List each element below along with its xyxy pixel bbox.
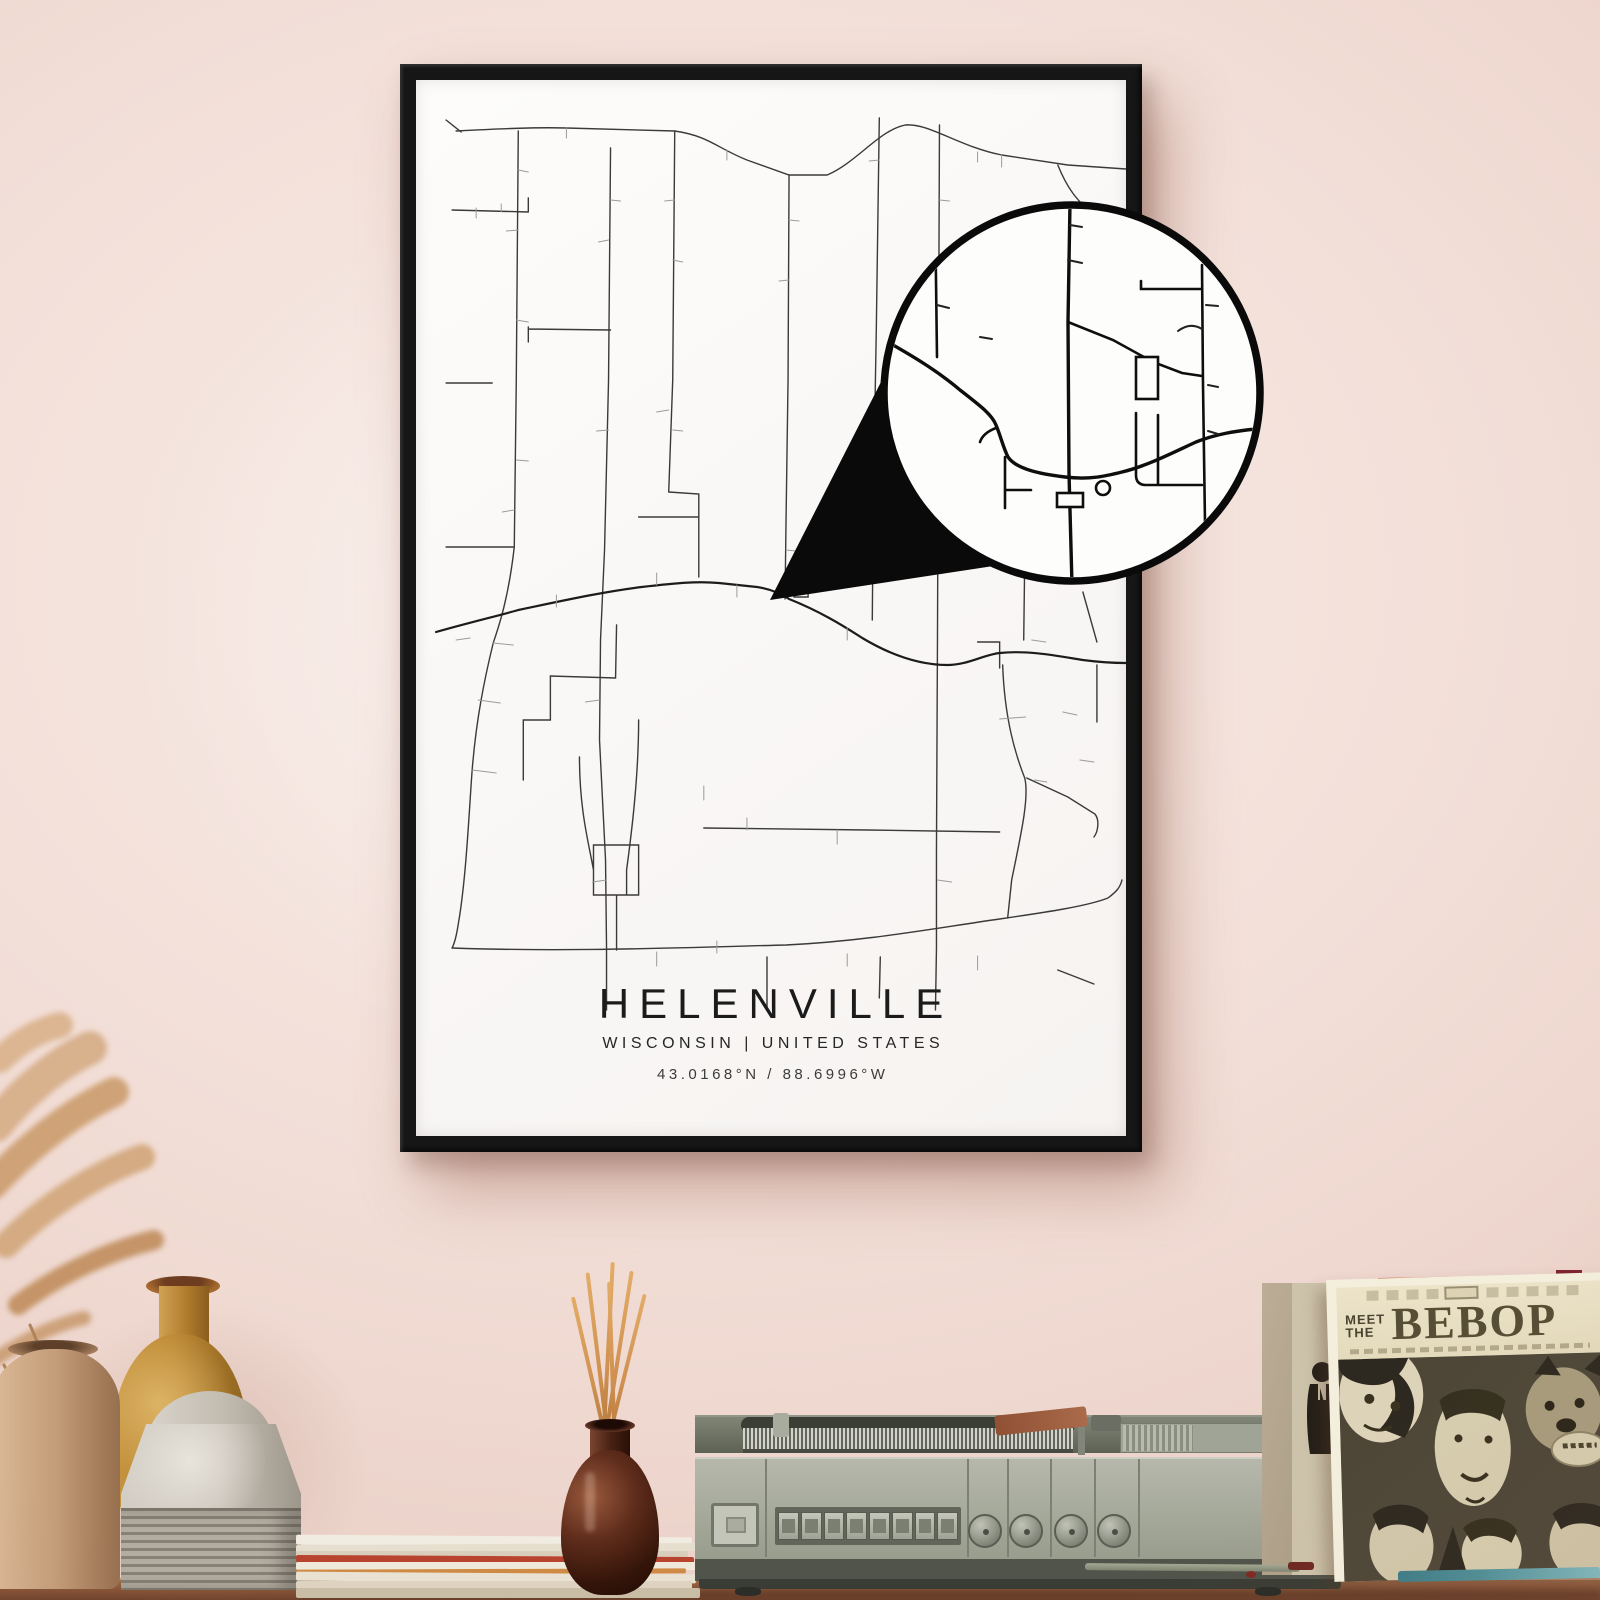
- player-base-lip: [699, 1579, 1341, 1589]
- preset-button: [778, 1512, 799, 1540]
- preset-button: [846, 1512, 867, 1540]
- panel-groove: [1094, 1459, 1096, 1557]
- preset-button: [915, 1512, 936, 1540]
- gray-vase-ribs: [121, 1508, 301, 1590]
- power-button: [711, 1503, 759, 1547]
- preset-button: [801, 1512, 822, 1540]
- album-artwork: [1338, 1352, 1600, 1582]
- panel-groove: [1138, 1459, 1140, 1557]
- preset-button: [937, 1512, 958, 1540]
- cue-lever: [773, 1413, 789, 1437]
- preset-button-row: [775, 1507, 961, 1545]
- player-foot: [1255, 1587, 1281, 1596]
- panel-groove: [765, 1459, 767, 1557]
- panel-groove: [1007, 1459, 1009, 1557]
- tonearm-counterweight: [1091, 1415, 1121, 1431]
- volume-knob: [968, 1514, 1002, 1548]
- poster-subtitle: WISCONSIN | UNITED STATES: [416, 1035, 1126, 1053]
- preset-button: [892, 1512, 913, 1540]
- room-scene: MEET THE BEBOP: [0, 0, 1600, 1600]
- panel-groove: [1050, 1459, 1052, 1557]
- tonearm-pivot: [1078, 1427, 1085, 1455]
- tone-knob: [1009, 1514, 1043, 1548]
- poster-title: HELENVILLE: [416, 980, 1126, 1028]
- red-dot: [1246, 1571, 1256, 1578]
- player-foot: [735, 1587, 761, 1596]
- tuning-knob: [1054, 1514, 1088, 1548]
- preset-button: [824, 1512, 845, 1540]
- album-cover: MEET THE BEBOP: [1326, 1272, 1600, 1582]
- bottle-highlight: [585, 1472, 595, 1532]
- player-lid-ribs: [1123, 1425, 1193, 1451]
- album-header: MEET THE BEBOP: [1336, 1280, 1600, 1360]
- preset-button: [869, 1512, 890, 1540]
- panel-groove: [967, 1459, 969, 1557]
- incense-bottle-rim: [585, 1419, 635, 1432]
- album-pretitle: MEET THE: [1345, 1312, 1386, 1339]
- poster-coordinates: 43.0168°N / 88.6996°W: [416, 1066, 1126, 1083]
- map-zoom-callout: [750, 185, 1270, 615]
- album-title: BEBOP: [1391, 1300, 1558, 1344]
- selector-knob: [1097, 1514, 1131, 1548]
- pencil-tip: [1288, 1562, 1314, 1570]
- tan-vase: [0, 1349, 120, 1589]
